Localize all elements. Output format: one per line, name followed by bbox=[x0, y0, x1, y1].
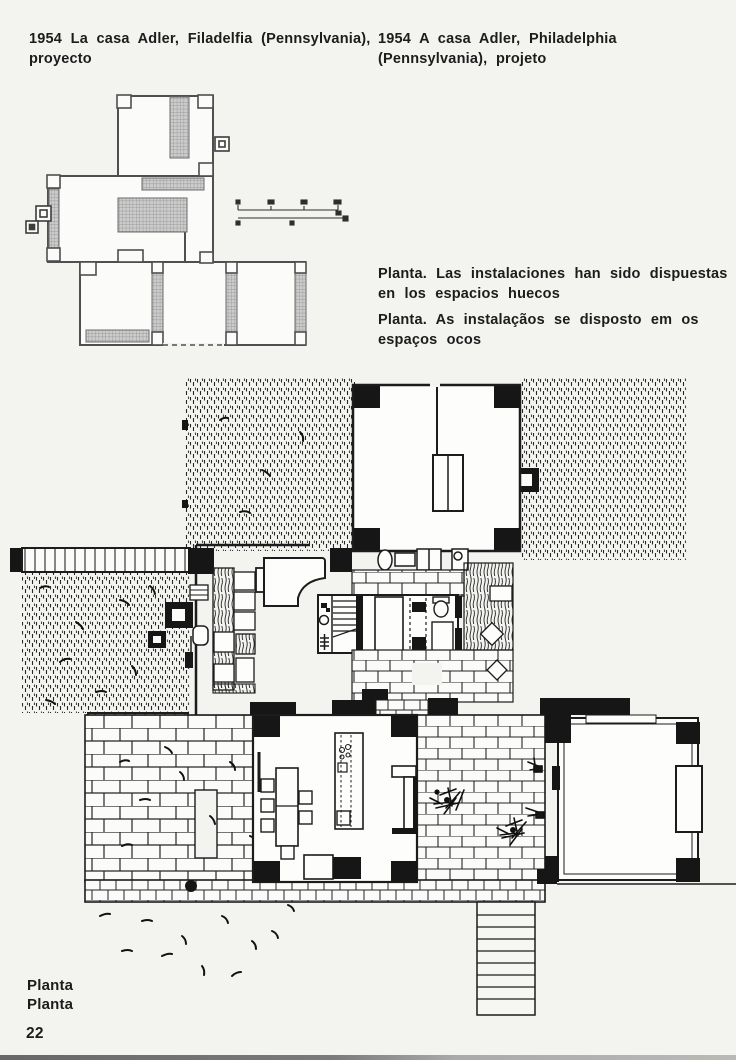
caption-spanish: Planta. Las instalaciones han sido dispu… bbox=[378, 264, 730, 304]
island-counter bbox=[335, 733, 363, 829]
window-bay bbox=[676, 766, 702, 832]
book-page: 1954 La casa Adler, Filadelfia (Pennsylv… bbox=[0, 0, 736, 1060]
small-plan-drawing bbox=[0, 80, 370, 370]
stair-bath-complex bbox=[318, 548, 513, 702]
right-room bbox=[545, 715, 702, 882]
walkway-steps bbox=[477, 902, 535, 1015]
caption-portuguese-line1: Planta. As instalaçãos se disposto em os bbox=[378, 310, 730, 330]
large-plan-drawing bbox=[0, 370, 736, 1035]
kitchen-wing bbox=[185, 545, 325, 715]
title-portuguese-line1: 1954 A casa Adler, Philadelphia bbox=[378, 29, 708, 49]
grand-piano bbox=[264, 558, 325, 606]
sofa bbox=[304, 855, 333, 879]
scale-bar bbox=[236, 200, 348, 225]
dining-table bbox=[276, 768, 298, 846]
caption-spanish-line2: en los espacios huecos bbox=[378, 284, 730, 304]
page-edge-shadow bbox=[0, 1055, 736, 1060]
title-portuguese-line2: (Pennsylvania), projeto bbox=[378, 49, 708, 69]
title-portuguese: 1954 A casa Adler, Philadelphia (Pennsyl… bbox=[378, 29, 708, 69]
title-spanish-line2: proyecto bbox=[29, 49, 374, 69]
living-room bbox=[253, 715, 418, 882]
title-spanish-line1: 1954 La casa Adler, Filadelfia (Pennsylv… bbox=[29, 29, 374, 49]
caption-spanish-line1: Planta. Las instalaciones han sido dispu… bbox=[378, 264, 730, 284]
caption-portuguese-line2: espaços ocos bbox=[378, 330, 730, 350]
caption-portuguese: Planta. As instalaçãos se disposto em os… bbox=[378, 310, 730, 350]
bedroom-block bbox=[353, 381, 520, 551]
wall-band bbox=[250, 698, 630, 716]
title-spanish: 1954 La casa Adler, Filadelfia (Pennsylv… bbox=[29, 29, 374, 69]
